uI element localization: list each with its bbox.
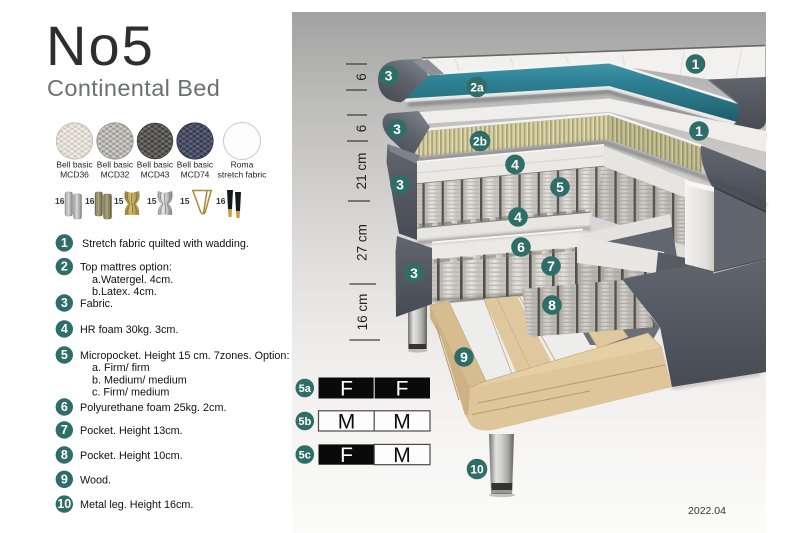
svg-text:7: 7 [547,258,555,274]
svg-text:M: M [393,444,411,467]
svg-text:16 cm: 16 cm [355,294,370,331]
svg-text:5: 5 [556,179,564,195]
svg-text:4: 4 [511,156,519,172]
svg-text:4: 4 [514,209,522,225]
svg-text:6: 6 [354,125,369,133]
svg-text:1: 1 [695,123,703,139]
svg-text:3: 3 [396,177,404,193]
svg-text:M: M [338,410,356,433]
svg-text:2a: 2a [470,80,484,94]
svg-text:3: 3 [410,265,418,281]
svg-text:6: 6 [517,239,525,255]
svg-text:10: 10 [470,462,484,476]
svg-text:2022.04: 2022.04 [688,505,726,517]
svg-text:5c: 5c [299,449,311,461]
svg-text:2b: 2b [473,134,487,148]
svg-text:F: F [340,378,353,401]
svg-text:M: M [393,410,411,433]
svg-text:3: 3 [393,121,401,137]
svg-text:1: 1 [692,56,700,72]
svg-text:8: 8 [548,297,556,313]
svg-text:5b: 5b [298,416,311,428]
svg-text:9: 9 [460,349,468,365]
svg-text:F: F [396,378,409,401]
svg-text:6: 6 [354,73,369,81]
svg-text:3: 3 [385,68,393,84]
svg-text:5a: 5a [299,383,312,395]
svg-text:27 cm: 27 cm [355,224,370,261]
svg-text:F: F [340,444,353,467]
svg-text:21 cm: 21 cm [354,153,369,190]
